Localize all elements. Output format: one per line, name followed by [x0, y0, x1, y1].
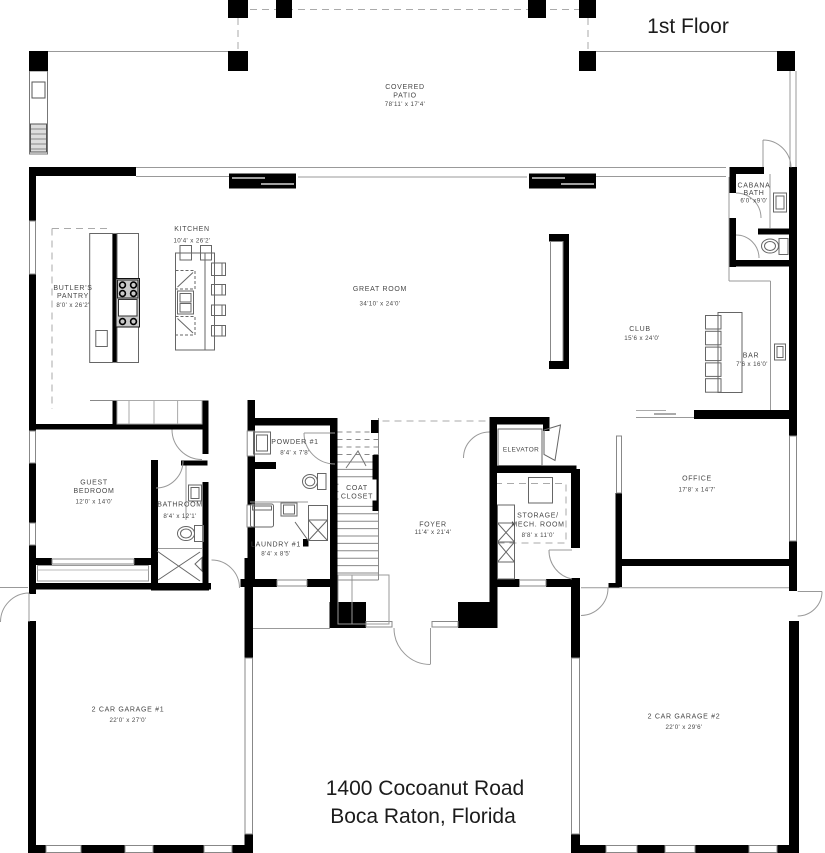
svg-text:POWDER #1: POWDER #1 — [271, 439, 319, 446]
svg-text:MECH. ROOM: MECH. ROOM — [511, 522, 564, 529]
svg-text:22'0' x 27'0': 22'0' x 27'0' — [109, 717, 146, 724]
svg-text:6'0' x9'0': 6'0' x9'0' — [740, 198, 767, 205]
svg-text:22'0' x 29'6': 22'0' x 29'6' — [665, 724, 702, 731]
svg-text:CLOSET: CLOSET — [341, 494, 373, 501]
svg-text:10'4' x 26'2': 10'4' x 26'2' — [173, 238, 210, 245]
svg-text:COVERED: COVERED — [385, 84, 425, 91]
svg-text:11'4' x 21'4': 11'4' x 21'4' — [415, 529, 452, 536]
svg-text:1st Floor: 1st Floor — [647, 15, 729, 38]
svg-text:2 CAR GARAGE #1: 2 CAR GARAGE #1 — [92, 707, 165, 714]
svg-text:BAR: BAR — [743, 353, 760, 360]
svg-text:ELEVATOR: ELEVATOR — [503, 447, 539, 454]
svg-text:CLUB: CLUB — [629, 326, 650, 333]
svg-text:34'10' x 24'0': 34'10' x 24'0' — [360, 301, 401, 308]
svg-text:PANTRY: PANTRY — [57, 293, 89, 300]
svg-text:78'11' x 17'4': 78'11' x 17'4' — [385, 101, 426, 108]
svg-text:12'0' x 14'0': 12'0' x 14'0' — [75, 499, 112, 506]
svg-text:COAT: COAT — [346, 485, 368, 492]
svg-text:LAUNDRY #1: LAUNDRY #1 — [251, 542, 301, 549]
svg-text:GREAT ROOM: GREAT ROOM — [353, 286, 407, 293]
svg-text:2 CAR GARAGE #2: 2 CAR GARAGE #2 — [648, 714, 721, 721]
svg-text:BATHROOM: BATHROOM — [157, 502, 203, 509]
svg-text:8'0' x 26'2': 8'0' x 26'2' — [56, 302, 89, 309]
svg-text:8'4' x 7'8': 8'4' x 7'8' — [280, 450, 309, 457]
svg-text:BATH: BATH — [744, 190, 765, 197]
svg-text:KITCHEN: KITCHEN — [174, 226, 210, 233]
svg-text:8'4' x 12'1': 8'4' x 12'1' — [163, 513, 196, 520]
svg-text:1400 Cocoanut Road: 1400 Cocoanut Road — [326, 777, 525, 800]
svg-text:17'8' x 14'7': 17'8' x 14'7' — [678, 487, 715, 494]
svg-text:CABANA: CABANA — [738, 183, 771, 190]
svg-text:8'4' x 8'5': 8'4' x 8'5' — [261, 551, 290, 558]
svg-text:Boca Raton, Florida: Boca Raton, Florida — [330, 805, 516, 828]
svg-text:FOYER: FOYER — [419, 522, 447, 529]
svg-text:7'6 x 16'0': 7'6 x 16'0' — [736, 361, 768, 368]
svg-text:STORAGE/: STORAGE/ — [517, 513, 559, 520]
svg-text:GUEST: GUEST — [80, 480, 108, 487]
svg-text:8'8' x 11'0': 8'8' x 11'0' — [522, 532, 555, 539]
svg-text:BUTLER'S: BUTLER'S — [53, 285, 92, 292]
svg-text:15'6 x 24'0': 15'6 x 24'0' — [624, 335, 660, 342]
svg-text:OFFICE: OFFICE — [682, 476, 712, 483]
svg-text:BEDROOM: BEDROOM — [73, 488, 114, 495]
svg-text:PATIO: PATIO — [393, 93, 416, 100]
